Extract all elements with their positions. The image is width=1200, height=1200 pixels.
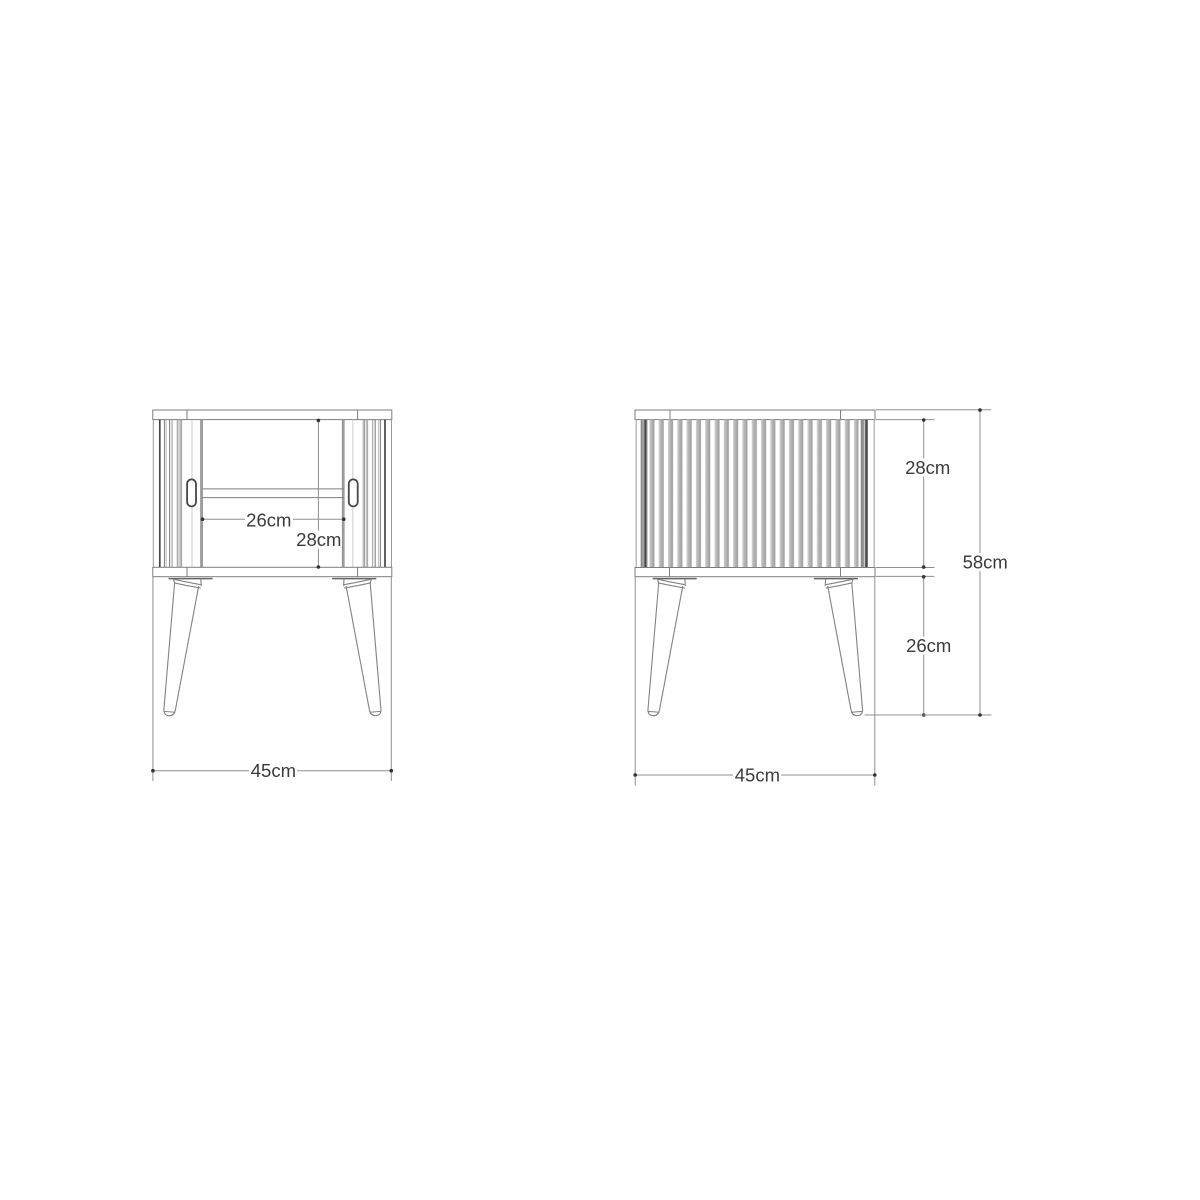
svg-text:26cm: 26cm: [246, 509, 291, 530]
svg-text:45cm: 45cm: [735, 765, 780, 786]
svg-text:28cm: 28cm: [905, 457, 950, 478]
svg-text:45cm: 45cm: [251, 760, 296, 781]
svg-text:26cm: 26cm: [906, 635, 951, 656]
svg-text:28cm: 28cm: [296, 529, 341, 550]
svg-text:58cm: 58cm: [963, 552, 1008, 573]
